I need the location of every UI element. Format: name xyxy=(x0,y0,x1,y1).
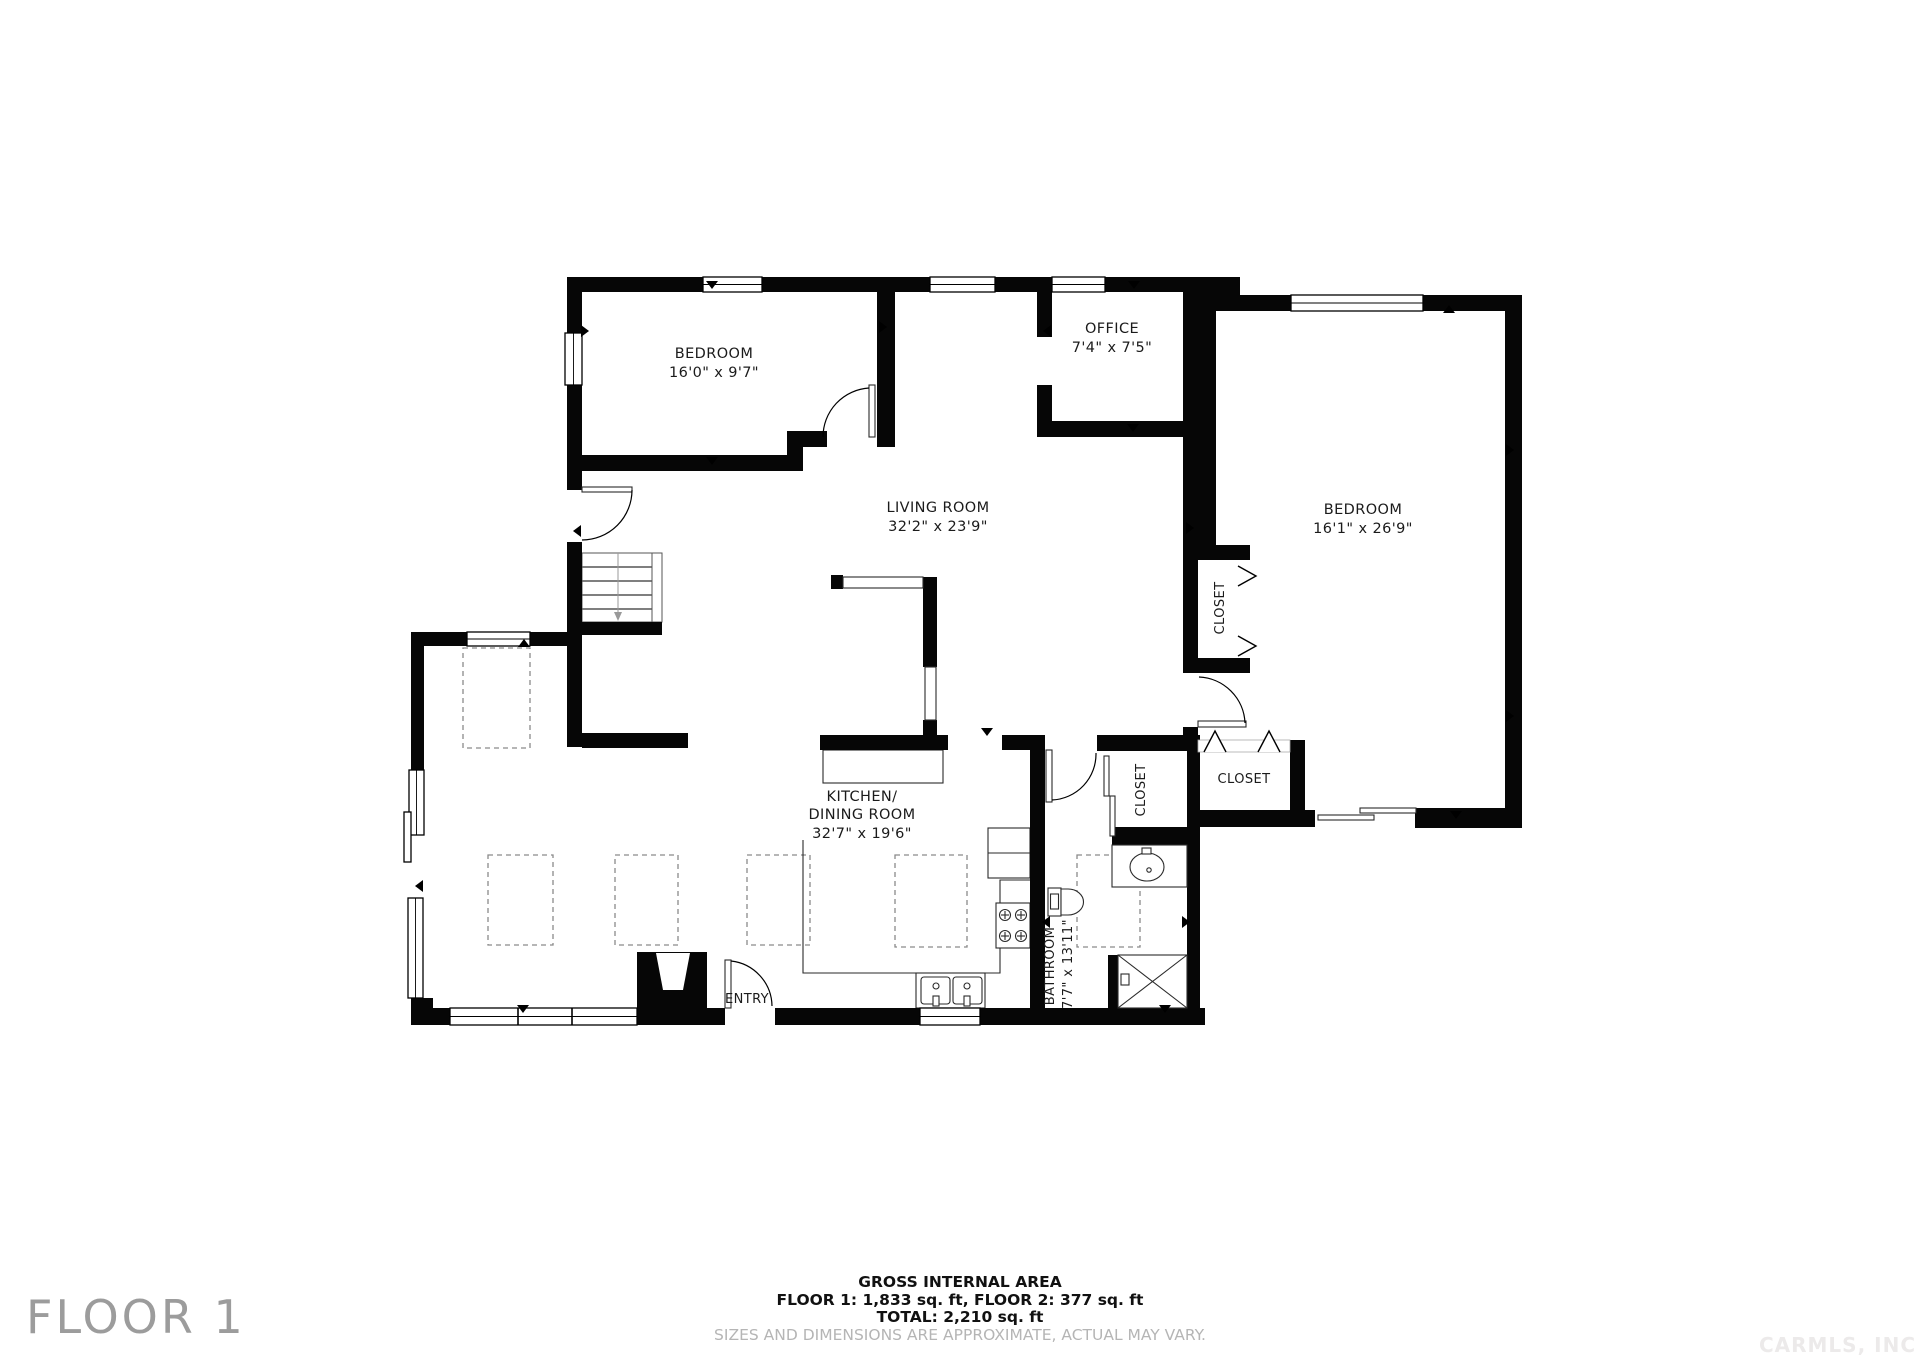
footer: GROSS INTERNAL AREA FLOOR 1: 1,833 sq. f… xyxy=(26,1273,1916,1357)
kitchen-sink xyxy=(916,973,985,1008)
bedroom1-label: BEDROOM xyxy=(675,346,754,362)
office-label: OFFICE xyxy=(1085,321,1139,337)
entry-label: ENTRY xyxy=(725,992,769,1007)
closet-doors xyxy=(1104,566,1416,836)
kitchen-counter-top xyxy=(823,750,943,783)
kitchen-dims: 32'7" x 19'6" xyxy=(812,826,912,842)
door-bedroom2 xyxy=(1198,677,1246,727)
mls-watermark: CARMLS, INC xyxy=(1759,1333,1916,1357)
living-room-dims: 32'2" x 23'9" xyxy=(888,519,988,535)
living-room-label: LIVING ROOM xyxy=(886,500,989,516)
door-living-left xyxy=(582,487,632,540)
kitchen-label-line2: DINING ROOM xyxy=(808,807,915,823)
closet-upper-label: CLOSET xyxy=(1213,582,1228,635)
bedroom2-dims: 16'1" x 26'9" xyxy=(1313,521,1413,537)
disclaimer: SIZES AND DIMENSIONS ARE APPROXIMATE, AC… xyxy=(714,1326,1206,1344)
toilet xyxy=(1048,888,1083,916)
bedroom2-label: BEDROOM xyxy=(1324,502,1403,518)
door-bathroom xyxy=(1046,750,1096,802)
window xyxy=(404,812,411,862)
closet-bathroom-label: CLOSET xyxy=(1134,764,1149,817)
door-bedroom1 xyxy=(823,385,875,437)
floor-areas: FLOOR 1: 1,833 sq. ft, FLOOR 2: 377 sq. … xyxy=(777,1291,1145,1309)
window xyxy=(565,333,582,385)
staircase xyxy=(582,553,662,622)
doors xyxy=(582,385,1246,1008)
half-walls xyxy=(843,577,936,720)
closet-bedroom-label: CLOSET xyxy=(1218,772,1271,787)
window xyxy=(450,1008,637,1025)
shower xyxy=(1118,955,1187,1008)
window xyxy=(408,898,423,998)
gross-area-title: GROSS INTERNAL AREA xyxy=(858,1273,1061,1291)
window xyxy=(1052,277,1105,292)
total-area: TOTAL: 2,210 sq. ft xyxy=(877,1308,1044,1326)
floor-plan-page: BEDROOM 16'0" x 9'7" OFFICE 7'4" x 7'5" … xyxy=(0,0,1920,1358)
window xyxy=(920,1008,980,1025)
floor-number-label: FLOOR 1 xyxy=(26,1290,246,1344)
kitchen-label-line1: KITCHEN/ xyxy=(827,789,898,805)
floor-plan-canvas: BEDROOM 16'0" x 9'7" OFFICE 7'4" x 7'5" … xyxy=(0,0,1920,1358)
bathroom-dims: 7'7" x 13'11" xyxy=(1061,919,1076,1009)
window xyxy=(930,277,995,292)
window xyxy=(1291,295,1423,311)
stove xyxy=(996,903,1030,948)
office-dims: 7'4" x 7'5" xyxy=(1072,340,1152,356)
bedroom1-dims: 16'0" x 9'7" xyxy=(669,365,759,381)
bathroom-label: BATHROOM xyxy=(1043,927,1058,1005)
bathroom-sink xyxy=(1112,845,1187,887)
windows xyxy=(404,277,1423,1025)
